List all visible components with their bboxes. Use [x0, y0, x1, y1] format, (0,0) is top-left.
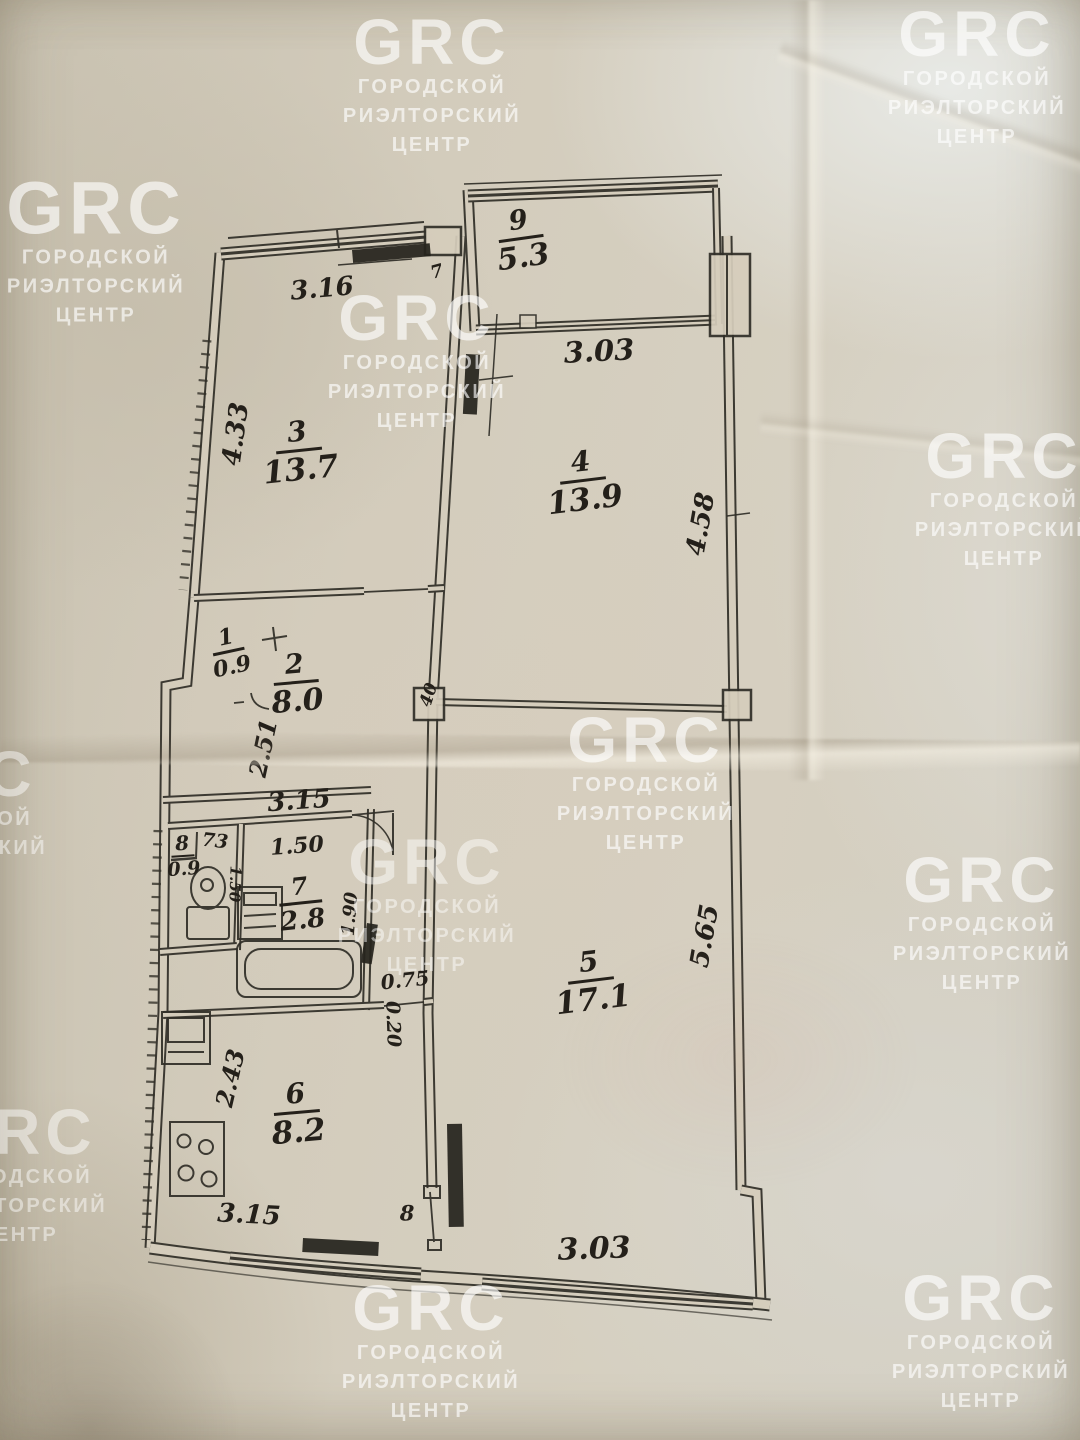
room-5-area: 17.1: [554, 980, 633, 1020]
room-9-label: 9 5.3: [491, 204, 552, 277]
dim-balcony-bottom: 3.03: [563, 332, 635, 370]
room-2-label: 2 8.0: [267, 649, 325, 719]
dim-wc-side: 1.50: [225, 865, 244, 902]
room-6-number: 6: [271, 1078, 319, 1116]
room-5-number: 5: [564, 945, 613, 984]
room-8-area: 0.9: [167, 859, 201, 880]
room-8-label: 8 0.9: [165, 832, 201, 880]
radiator-kitchen: [302, 1238, 379, 1256]
room-4-number: 4: [556, 445, 605, 484]
radiator-room4: [463, 354, 480, 415]
dim-room5-bottom: 3.03: [557, 1230, 631, 1268]
scanned-floor-plan-photo: 3 13.7 9 5.3 4 13.9 1 0.9 2 8.0 8 0.9 7 …: [0, 0, 1080, 1440]
room-7-number: 7: [277, 872, 323, 906]
kitchen-sink-icon: [162, 1012, 210, 1064]
room-4-area: 13.9: [546, 480, 625, 520]
dim-passage-depth: 0.20: [381, 1000, 405, 1047]
room-3-area: 13.7: [262, 451, 340, 490]
right-column: [710, 254, 750, 336]
room-3-label: 3 13.7: [258, 414, 340, 490]
dim-bath-diagonal: 1.90: [338, 891, 363, 937]
sink-icon: [238, 887, 282, 939]
room-6-area: 8.2: [270, 1115, 326, 1151]
dim-door-room5: 8: [400, 1201, 415, 1226]
room-2-area: 8.0: [270, 685, 325, 719]
right-mid-column: [723, 690, 751, 720]
dim-kitchen-bottom: 3.15: [217, 1198, 282, 1231]
balcony-door-notch: [520, 315, 536, 328]
room-3-number: 3: [273, 416, 322, 455]
bathtub-icon: [237, 941, 361, 997]
room-7-area: 2.8: [279, 905, 327, 936]
radiator-room5: [447, 1124, 464, 1227]
wall-cap: [425, 227, 461, 255]
room-2-number: 2: [271, 649, 319, 686]
dim-hall-bottom: 3.15: [266, 784, 331, 818]
fixtures: [162, 867, 361, 1196]
room-6-label: 6 8.2: [267, 1078, 327, 1150]
room-7-label: 7 2.8: [275, 872, 326, 935]
room-4-label: 4 13.9: [541, 444, 624, 521]
door-panel: [361, 923, 378, 964]
dim-room3-top: 3.16: [289, 271, 355, 306]
dim-bath-top: 1.50: [269, 831, 324, 861]
dim-passage-width: 0.75: [380, 966, 431, 995]
room-8-number: 8: [169, 832, 195, 858]
dim-wc-width: 73: [201, 829, 230, 854]
room-5-label: 5 17.1: [549, 944, 632, 1021]
room-9-area: 5.3: [496, 239, 552, 276]
stove-icon: [170, 1122, 224, 1196]
